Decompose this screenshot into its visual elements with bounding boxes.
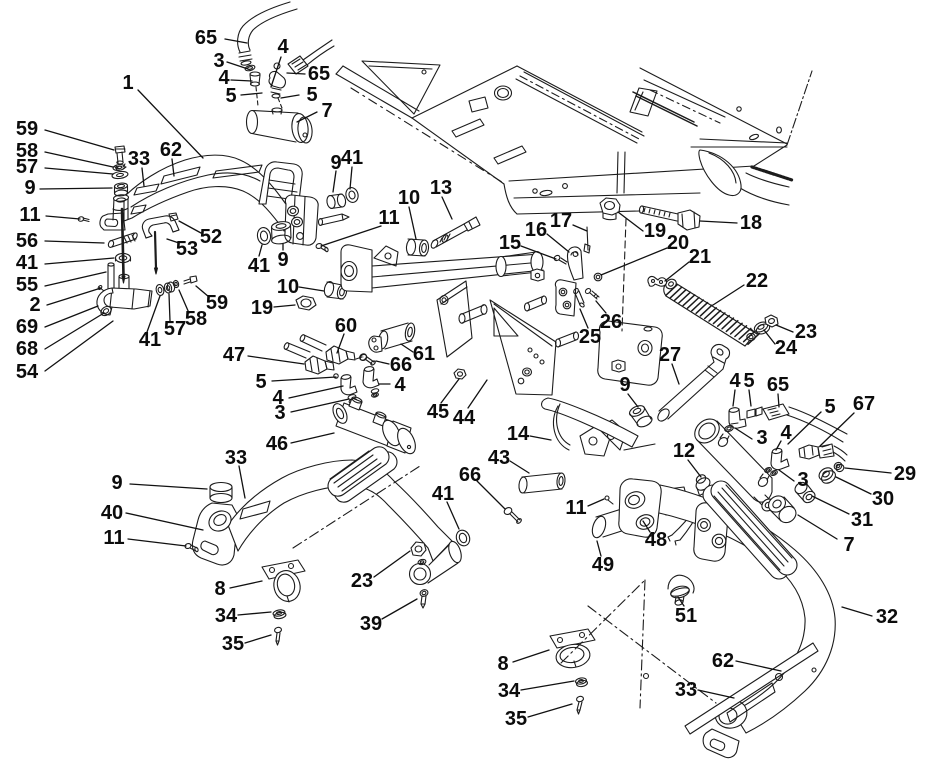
svg-text:14: 14 bbox=[507, 423, 530, 445]
svg-text:27: 27 bbox=[659, 344, 681, 366]
svg-text:59: 59 bbox=[206, 292, 228, 314]
svg-text:11: 11 bbox=[103, 527, 124, 549]
svg-text:3: 3 bbox=[756, 427, 767, 449]
svg-text:57: 57 bbox=[16, 156, 38, 178]
svg-text:48: 48 bbox=[645, 529, 667, 551]
svg-text:15: 15 bbox=[499, 232, 521, 254]
svg-text:21: 21 bbox=[689, 246, 711, 268]
svg-text:52: 52 bbox=[200, 226, 222, 248]
svg-text:47: 47 bbox=[223, 344, 245, 366]
svg-text:61: 61 bbox=[413, 343, 435, 365]
svg-text:4: 4 bbox=[277, 36, 289, 58]
svg-text:34: 34 bbox=[215, 605, 238, 627]
svg-text:31: 31 bbox=[851, 509, 873, 531]
svg-text:69: 69 bbox=[16, 316, 38, 338]
svg-text:3: 3 bbox=[797, 469, 808, 491]
svg-text:5: 5 bbox=[225, 85, 236, 107]
svg-text:9: 9 bbox=[24, 177, 35, 199]
svg-text:49: 49 bbox=[592, 554, 614, 576]
svg-text:4: 4 bbox=[394, 374, 406, 396]
svg-text:57: 57 bbox=[164, 318, 186, 340]
svg-text:4: 4 bbox=[729, 370, 741, 392]
svg-text:51: 51 bbox=[675, 605, 697, 627]
svg-text:32: 32 bbox=[876, 606, 898, 628]
svg-text:5: 5 bbox=[255, 371, 266, 393]
svg-text:5: 5 bbox=[743, 370, 754, 392]
svg-text:40: 40 bbox=[101, 502, 123, 524]
svg-text:45: 45 bbox=[427, 401, 449, 423]
svg-text:9: 9 bbox=[619, 374, 630, 396]
svg-text:13: 13 bbox=[430, 177, 452, 199]
svg-text:56: 56 bbox=[16, 230, 38, 252]
svg-text:54: 54 bbox=[16, 361, 39, 383]
svg-text:19: 19 bbox=[251, 297, 273, 319]
svg-text:20: 20 bbox=[667, 232, 689, 254]
svg-text:39: 39 bbox=[360, 613, 382, 635]
svg-text:58: 58 bbox=[185, 308, 207, 330]
svg-text:24: 24 bbox=[775, 337, 798, 359]
svg-text:16: 16 bbox=[525, 219, 547, 241]
svg-text:60: 60 bbox=[335, 315, 357, 337]
svg-text:19: 19 bbox=[644, 220, 666, 242]
svg-text:17: 17 bbox=[550, 210, 572, 232]
svg-text:55: 55 bbox=[16, 274, 38, 296]
svg-text:35: 35 bbox=[222, 633, 244, 655]
svg-text:1: 1 bbox=[122, 72, 133, 94]
svg-text:62: 62 bbox=[160, 139, 182, 161]
svg-text:12: 12 bbox=[673, 440, 695, 462]
svg-text:66: 66 bbox=[390, 354, 412, 376]
svg-text:23: 23 bbox=[351, 570, 373, 592]
svg-text:59: 59 bbox=[16, 118, 38, 140]
svg-text:41: 41 bbox=[432, 483, 454, 505]
svg-text:11: 11 bbox=[19, 204, 40, 226]
svg-text:7: 7 bbox=[321, 100, 332, 122]
svg-text:44: 44 bbox=[453, 407, 476, 429]
svg-text:9: 9 bbox=[277, 249, 288, 271]
svg-text:33: 33 bbox=[225, 447, 247, 469]
svg-text:66: 66 bbox=[459, 464, 481, 486]
svg-text:30: 30 bbox=[872, 488, 894, 510]
svg-text:10: 10 bbox=[277, 276, 299, 298]
svg-text:10: 10 bbox=[398, 187, 420, 209]
svg-text:41: 41 bbox=[341, 147, 363, 169]
svg-text:29: 29 bbox=[894, 463, 916, 485]
svg-text:68: 68 bbox=[16, 338, 38, 360]
svg-text:11: 11 bbox=[565, 497, 586, 519]
svg-text:33: 33 bbox=[675, 679, 697, 701]
svg-text:41: 41 bbox=[16, 252, 38, 274]
svg-text:65: 65 bbox=[308, 63, 330, 85]
svg-text:41: 41 bbox=[139, 329, 161, 351]
svg-text:2: 2 bbox=[29, 294, 40, 316]
svg-text:23: 23 bbox=[795, 321, 817, 343]
svg-text:35: 35 bbox=[505, 708, 527, 730]
svg-text:62: 62 bbox=[712, 650, 734, 672]
svg-text:25: 25 bbox=[579, 326, 601, 348]
svg-text:5: 5 bbox=[824, 396, 835, 418]
svg-text:8: 8 bbox=[497, 653, 508, 675]
svg-text:65: 65 bbox=[195, 27, 217, 49]
svg-text:3: 3 bbox=[274, 402, 285, 424]
svg-text:65: 65 bbox=[767, 374, 789, 396]
svg-text:7: 7 bbox=[843, 534, 854, 556]
svg-text:43: 43 bbox=[488, 447, 510, 469]
svg-text:26: 26 bbox=[600, 311, 622, 333]
svg-text:11: 11 bbox=[378, 207, 399, 229]
svg-text:34: 34 bbox=[498, 680, 521, 702]
svg-text:4: 4 bbox=[780, 422, 792, 444]
svg-text:53: 53 bbox=[176, 238, 198, 260]
svg-text:18: 18 bbox=[740, 212, 762, 234]
svg-text:9: 9 bbox=[111, 472, 122, 494]
svg-text:8: 8 bbox=[214, 578, 225, 600]
svg-text:46: 46 bbox=[266, 433, 288, 455]
svg-text:33: 33 bbox=[128, 148, 150, 170]
svg-text:22: 22 bbox=[746, 270, 768, 292]
svg-text:67: 67 bbox=[853, 393, 875, 415]
svg-text:5: 5 bbox=[306, 84, 317, 106]
svg-text:41: 41 bbox=[248, 255, 270, 277]
